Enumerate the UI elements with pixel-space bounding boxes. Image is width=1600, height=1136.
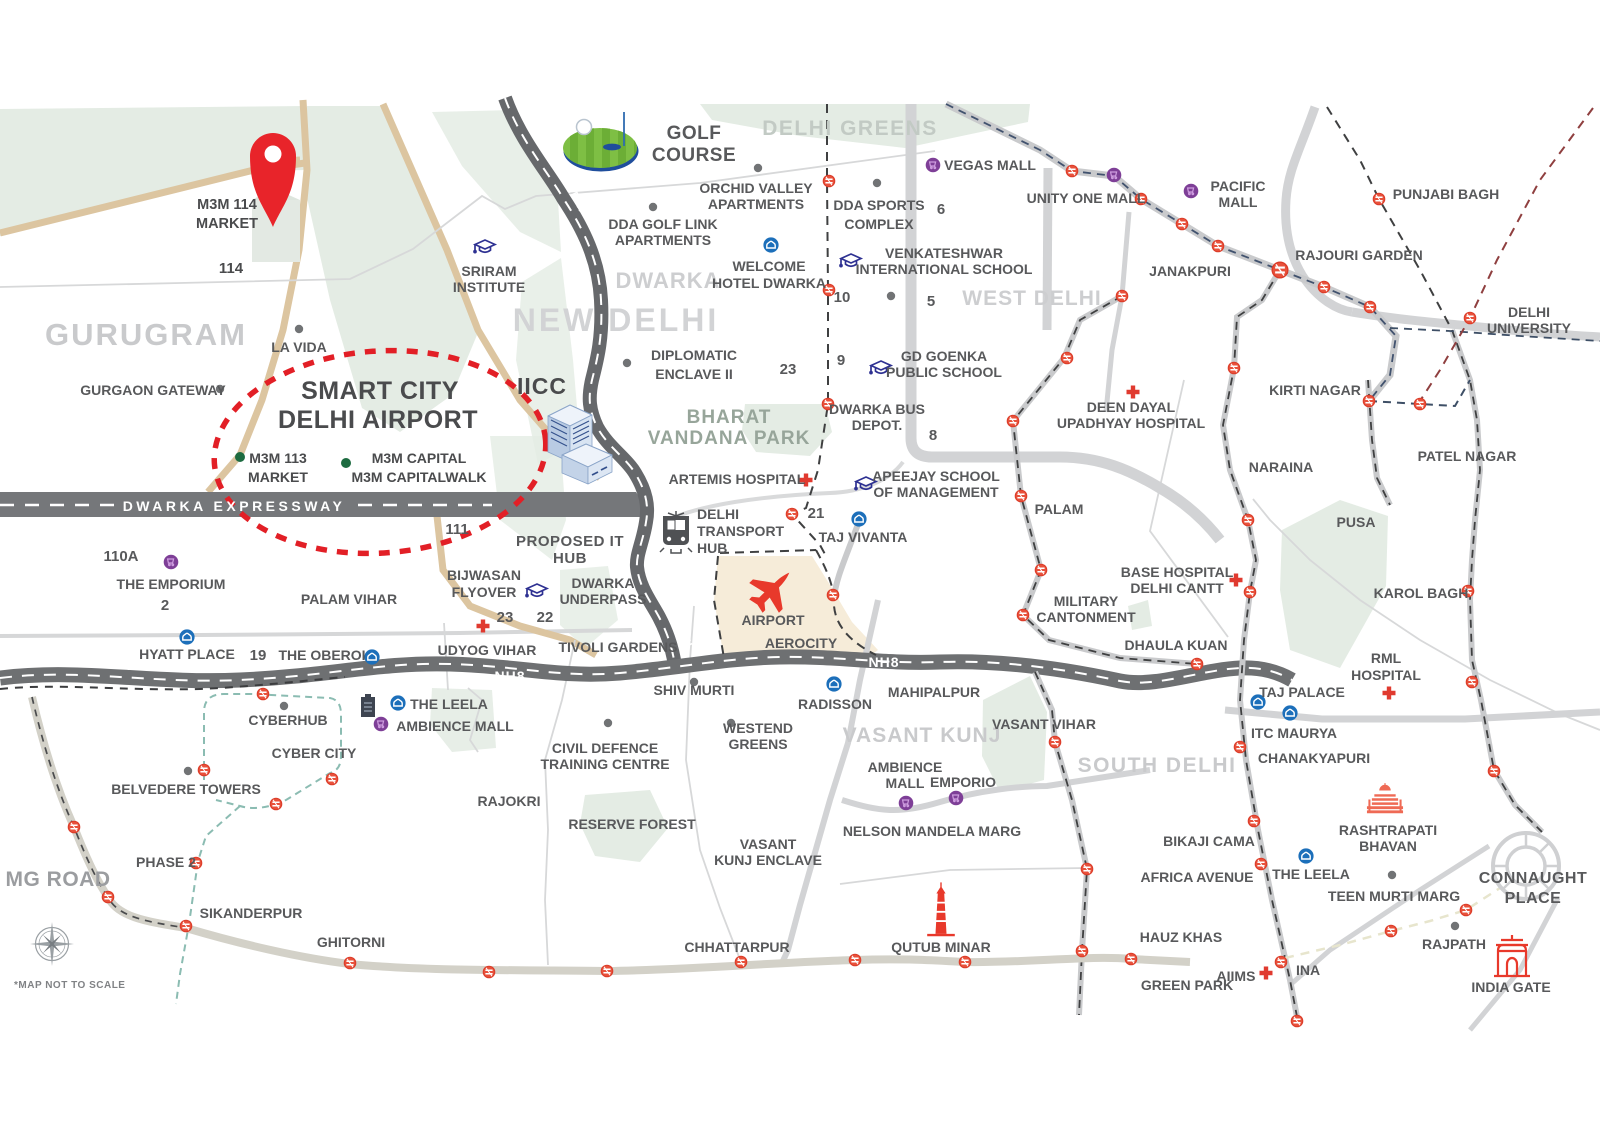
svg-text:TRAINING CENTRE: TRAINING CENTRE (540, 756, 669, 772)
svg-text:TIVOLI GARDENS: TIVOLI GARDENS (558, 639, 677, 655)
svg-text:THE LEELA: THE LEELA (410, 696, 488, 712)
svg-text:NEW DELHI: NEW DELHI (513, 302, 720, 338)
svg-text:110A: 110A (103, 548, 138, 565)
svg-text:9: 9 (837, 352, 845, 369)
svg-text:UDYOG VIHAR: UDYOG VIHAR (438, 642, 537, 658)
svg-text:DIPLOMATIC: DIPLOMATIC (651, 347, 737, 363)
svg-text:AIRPORT: AIRPORT (742, 612, 805, 628)
svg-text:HUB: HUB (553, 550, 587, 567)
svg-text:AFRICA AVENUE: AFRICA AVENUE (1140, 869, 1253, 885)
svg-text:PUNJABI BAGH: PUNJABI BAGH (1393, 186, 1500, 202)
svg-text:SOUTH DELHI: SOUTH DELHI (1078, 754, 1237, 777)
svg-text:SHIV MURTI: SHIV MURTI (654, 682, 735, 698)
svg-text:COMPLEX: COMPLEX (844, 216, 914, 232)
svg-text:VASANT VIHAR: VASANT VIHAR (992, 716, 1096, 732)
svg-text:KAROL BAGH: KAROL BAGH (1374, 585, 1469, 601)
svg-text:NH8: NH8 (494, 668, 525, 684)
svg-text:ITC MAURYA: ITC MAURYA (1251, 725, 1337, 741)
svg-text:VANDANA PARK: VANDANA PARK (648, 428, 811, 449)
svg-text:8: 8 (929, 427, 937, 444)
svg-text:NARAINA: NARAINA (1249, 459, 1314, 475)
svg-text:VASANT KUNJ: VASANT KUNJ (843, 724, 1002, 747)
svg-text:RESERVE FOREST: RESERVE FOREST (568, 816, 696, 832)
svg-text:DELHI CANTT: DELHI CANTT (1130, 580, 1224, 596)
svg-text:CANTONMENT: CANTONMENT (1036, 609, 1136, 625)
svg-text:NH8: NH8 (868, 654, 899, 670)
svg-text:TAJ PALACE: TAJ PALACE (1259, 684, 1345, 700)
svg-text:VASANT: VASANT (740, 836, 797, 852)
svg-text:23: 23 (780, 361, 797, 378)
svg-text:SRIRAM: SRIRAM (461, 263, 516, 279)
svg-text:DELHI: DELHI (1508, 304, 1550, 320)
svg-text:DWARKA BUS: DWARKA BUS (829, 401, 925, 417)
svg-text:BHAVAN: BHAVAN (1359, 838, 1417, 854)
svg-text:GURGAON GATEWAY: GURGAON GATEWAY (80, 382, 226, 398)
svg-text:RAJPATH: RAJPATH (1422, 936, 1486, 952)
svg-text:RASHTRAPATI: RASHTRAPATI (1339, 822, 1437, 838)
svg-text:OF MANAGEMENT: OF MANAGEMENT (873, 484, 999, 500)
svg-text:MARKET: MARKET (196, 216, 258, 232)
svg-text:INA: INA (1296, 962, 1320, 978)
svg-text:PACIFIC: PACIFIC (1211, 178, 1266, 194)
svg-text:THE EMPORIUM: THE EMPORIUM (117, 576, 226, 592)
svg-text:LA VIDA: LA VIDA (271, 339, 326, 355)
svg-text:THE LEELA: THE LEELA (1272, 866, 1350, 882)
svg-text:DELHI: DELHI (697, 506, 739, 522)
svg-text:JANAKPURI: JANAKPURI (1149, 263, 1231, 279)
svg-text:WESTEND: WESTEND (723, 720, 793, 736)
svg-text:UNITY ONE MALL: UNITY ONE MALL (1027, 190, 1146, 206)
svg-text:BASE HOSPITAL: BASE HOSPITAL (1121, 564, 1234, 580)
svg-text:GD GOENKA: GD GOENKA (901, 348, 987, 364)
svg-text:SMART CITY: SMART CITY (301, 377, 459, 405)
svg-text:HUB: HUB (697, 540, 727, 556)
svg-text:UNDERPASS: UNDERPASS (560, 591, 647, 607)
svg-text:ORCHID VALLEY: ORCHID VALLEY (699, 180, 813, 196)
svg-text:PALAM VIHAR: PALAM VIHAR (301, 591, 397, 607)
svg-text:HAUZ KHAS: HAUZ KHAS (1140, 929, 1222, 945)
svg-text:BIKAJI CAMA: BIKAJI CAMA (1163, 833, 1255, 849)
svg-text:CHHATTARPUR: CHHATTARPUR (684, 939, 789, 955)
svg-text:19: 19 (250, 647, 267, 664)
svg-text:RML: RML (1371, 650, 1402, 666)
svg-text:MARKET: MARKET (248, 469, 308, 485)
svg-text:CONNAUGHT: CONNAUGHT (1479, 870, 1588, 887)
svg-text:RADISSON: RADISSON (798, 696, 872, 712)
svg-text:FLYOVER: FLYOVER (452, 584, 517, 600)
svg-text:COURSE: COURSE (652, 145, 736, 166)
svg-text:CIVIL DEFENCE: CIVIL DEFENCE (552, 740, 658, 756)
svg-text:M3M 113: M3M 113 (249, 450, 307, 466)
svg-text:KIRTI NAGAR: KIRTI NAGAR (1269, 382, 1361, 398)
svg-text:PHASE 2: PHASE 2 (136, 854, 196, 870)
svg-text:GREENS: GREENS (728, 736, 787, 752)
svg-text:PATEL NAGAR: PATEL NAGAR (1418, 448, 1517, 464)
svg-text:PROPOSED IT: PROPOSED IT (516, 533, 624, 550)
svg-text:PLACE: PLACE (1505, 890, 1562, 907)
svg-text:INTERNATIONAL SCHOOL: INTERNATIONAL SCHOOL (856, 261, 1033, 277)
svg-text:HYATT PLACE: HYATT PLACE (139, 646, 235, 662)
svg-text:MALL: MALL (1219, 194, 1258, 210)
svg-text:GHITORNI: GHITORNI (317, 934, 385, 950)
svg-text:MILITARY: MILITARY (1054, 593, 1119, 609)
svg-text:GOLF: GOLF (667, 123, 722, 144)
svg-text:5: 5 (927, 293, 935, 310)
svg-text:TRANSPORT: TRANSPORT (697, 523, 785, 539)
svg-text:VEGAS MALL: VEGAS MALL (944, 157, 1036, 173)
svg-text:PUBLIC SCHOOL: PUBLIC SCHOOL (886, 364, 1002, 380)
svg-text:DDA GOLF LINK: DDA GOLF LINK (608, 216, 717, 232)
svg-text:KUNJ ENCLAVE: KUNJ ENCLAVE (714, 852, 822, 868)
svg-text:PUSA: PUSA (1337, 514, 1376, 530)
svg-text:INSTITUTE: INSTITUTE (453, 279, 525, 295)
svg-text:APARTMENTS: APARTMENTS (615, 232, 711, 248)
svg-text:DWARKA EXPRESSWAY: DWARKA EXPRESSWAY (123, 498, 346, 514)
svg-text:BIJWASAN: BIJWASAN (447, 567, 521, 583)
svg-text:2: 2 (161, 597, 169, 614)
svg-text:TAJ VIVANTA: TAJ VIVANTA (819, 529, 908, 545)
svg-text:THE OBEROI: THE OBEROI (278, 647, 365, 663)
svg-text:INDIA GATE: INDIA GATE (1471, 979, 1550, 995)
svg-text:CYBERHUB: CYBERHUB (248, 712, 327, 728)
svg-text:*MAP NOT TO SCALE: *MAP NOT TO SCALE (14, 980, 125, 991)
svg-text:APARTMENTS: APARTMENTS (708, 196, 804, 212)
svg-text:10: 10 (834, 289, 851, 306)
svg-text:ENCLAVE II: ENCLAVE II (655, 366, 733, 382)
svg-text:AIIMS: AIIMS (1217, 968, 1256, 984)
svg-text:MG ROAD: MG ROAD (6, 868, 111, 891)
svg-text:NELSON MANDELA MARG: NELSON MANDELA MARG (843, 823, 1021, 839)
svg-text:RAJOKRI: RAJOKRI (477, 793, 540, 809)
svg-text:EMPORIO: EMPORIO (930, 774, 996, 790)
svg-text:CYBER CITY: CYBER CITY (272, 745, 357, 761)
svg-text:QUTUB MINAR: QUTUB MINAR (891, 939, 991, 955)
svg-text:MAHIPALPUR: MAHIPALPUR (888, 684, 980, 700)
svg-text:SIKANDERPUR: SIKANDERPUR (200, 905, 303, 921)
svg-text:DDA SPORTS: DDA SPORTS (833, 197, 924, 213)
svg-text:DEEN DAYAL: DEEN DAYAL (1087, 399, 1176, 415)
svg-text:MALL: MALL (886, 775, 925, 791)
svg-text:AEROCITY: AEROCITY (765, 635, 838, 651)
svg-text:TEEN MURTI MARG: TEEN MURTI MARG (1328, 888, 1460, 904)
svg-text:CHANAKYAPURI: CHANAKYAPURI (1258, 750, 1370, 766)
svg-text:23: 23 (497, 609, 514, 626)
svg-text:22: 22 (537, 609, 554, 626)
svg-text:HOTEL DWARKA: HOTEL DWARKA (712, 275, 826, 291)
svg-text:M3M 114: M3M 114 (197, 197, 257, 213)
svg-text:IICC: IICC (517, 373, 567, 399)
svg-text:AMBIENCE: AMBIENCE (868, 759, 943, 775)
svg-text:6: 6 (937, 201, 945, 218)
svg-text:111: 111 (445, 521, 468, 538)
svg-text:HOSPITAL: HOSPITAL (1351, 667, 1421, 683)
svg-text:UNIVERSITY: UNIVERSITY (1487, 320, 1572, 336)
svg-text:BELVEDERE TOWERS: BELVEDERE TOWERS (111, 781, 261, 797)
svg-text:DWARKA: DWARKA (572, 575, 635, 591)
svg-text:M3M CAPITAL: M3M CAPITAL (372, 450, 467, 466)
svg-text:ARTEMIS HOSPITAL: ARTEMIS HOSPITAL (669, 471, 806, 487)
svg-text:VENKATESHWAR: VENKATESHWAR (885, 245, 1003, 261)
svg-text:21: 21 (808, 505, 825, 522)
svg-text:APEEJAY SCHOOL: APEEJAY SCHOOL (872, 468, 1000, 484)
svg-text:WEST DELHI: WEST DELHI (962, 287, 1102, 310)
svg-text:WELCOME: WELCOME (732, 258, 805, 274)
svg-text:DELHI AIRPORT: DELHI AIRPORT (278, 406, 478, 434)
svg-text:GURUGRAM: GURUGRAM (45, 317, 247, 352)
svg-text:PALAM: PALAM (1035, 501, 1084, 517)
svg-text:AMBIENCE MALL: AMBIENCE MALL (396, 718, 514, 734)
svg-text:M3M CAPITALWALK: M3M CAPITALWALK (351, 469, 486, 485)
svg-text:DELHI GREENS: DELHI GREENS (762, 117, 938, 140)
svg-text:DHAULA KUAN: DHAULA KUAN (1125, 637, 1228, 653)
svg-text:BHARAT: BHARAT (687, 407, 772, 428)
svg-text:DWARKA: DWARKA (616, 268, 721, 293)
svg-text:114: 114 (219, 260, 244, 277)
svg-text:DEPOT.: DEPOT. (852, 417, 903, 433)
svg-text:RAJOURI GARDEN: RAJOURI GARDEN (1295, 247, 1423, 263)
svg-text:UPADHYAY HOSPITAL: UPADHYAY HOSPITAL (1057, 415, 1206, 431)
